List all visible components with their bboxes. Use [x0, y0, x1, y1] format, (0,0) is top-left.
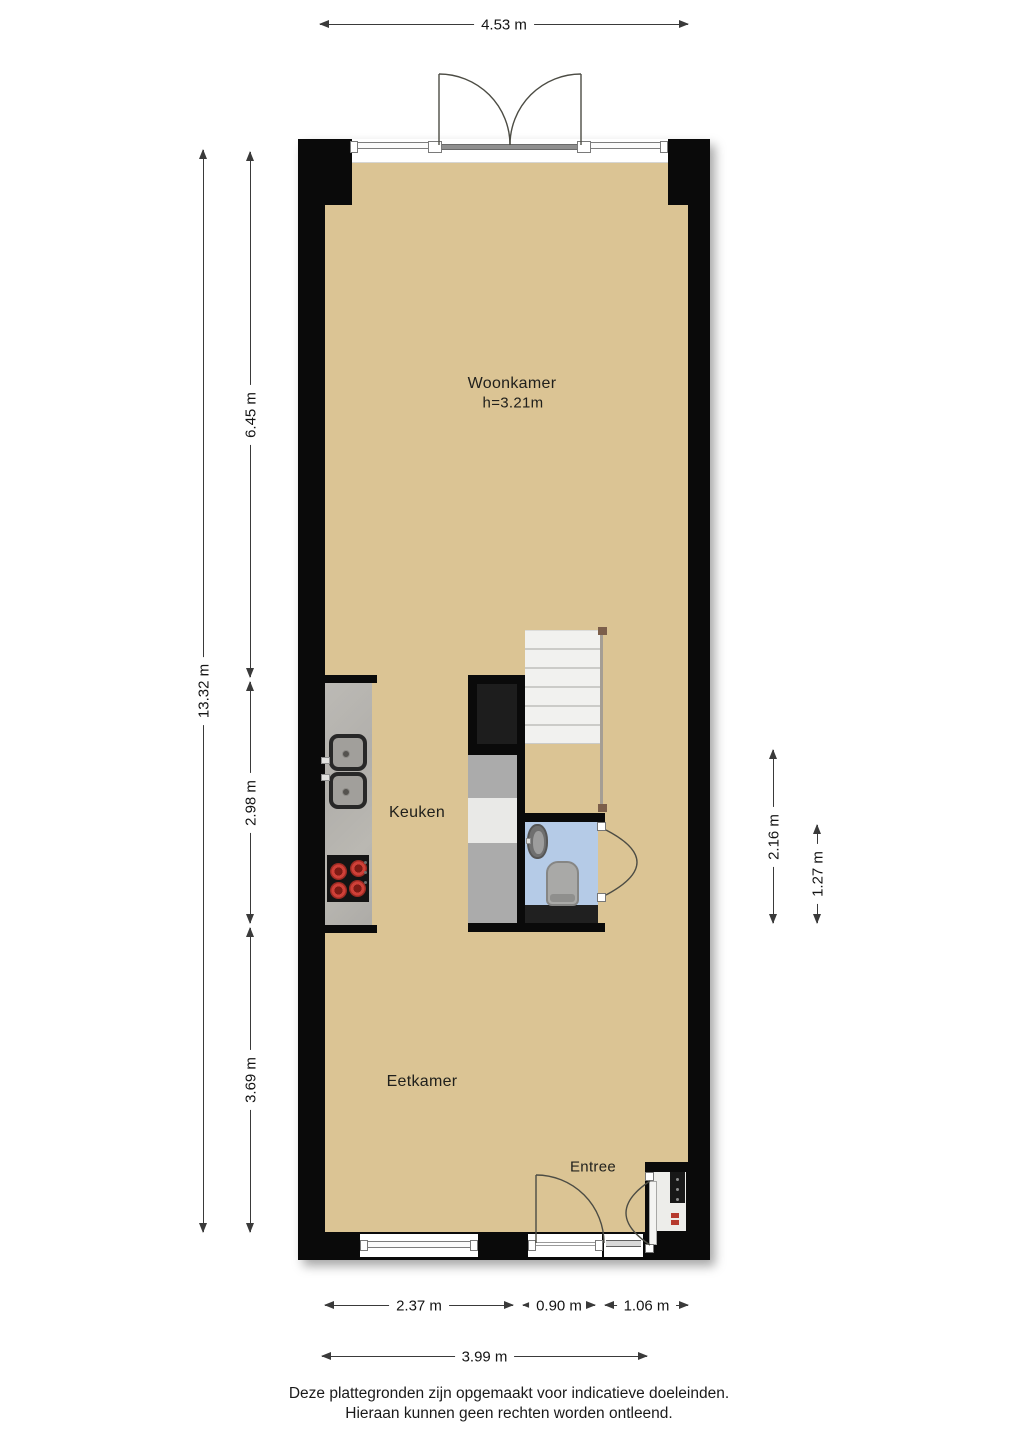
stair-divider-wall [517, 675, 525, 932]
bottom-window-glazing [364, 1241, 474, 1248]
basin-bowl [533, 831, 544, 854]
stove-knob [364, 871, 367, 874]
dim-toilet-depth: 1.27 m [817, 825, 818, 923]
door-frame-mark [595, 1240, 603, 1251]
meter-indicator [676, 1198, 679, 1201]
arrowhead [769, 914, 777, 924]
railing-post [598, 804, 607, 812]
arrowhead [813, 824, 821, 834]
dim-entry-door-width: 0.90 m [523, 1305, 595, 1306]
top-right-corner-pier [668, 163, 688, 205]
arrowhead [813, 914, 821, 924]
toilet-door-jamb [597, 822, 606, 831]
arrowhead [246, 681, 254, 691]
top-window-right [585, 142, 666, 149]
stove-knob [364, 861, 367, 864]
sink-drain [342, 750, 350, 758]
arrowhead [586, 1301, 596, 1309]
bottom-core-wall [468, 923, 605, 932]
room-label-entree: Entree [570, 1159, 616, 1176]
meter-red-mark [671, 1213, 679, 1218]
window-frame-mark [360, 1240, 368, 1251]
toilet-wall-top [517, 813, 605, 822]
sink-drain [342, 788, 350, 796]
top-window-left [354, 142, 435, 149]
arrowhead [246, 151, 254, 161]
arrowhead [246, 668, 254, 678]
dim-total-height: 13.32 m [203, 150, 204, 1232]
meter-door-hinge [645, 1244, 654, 1253]
footer-line-2: Hieraan kunnen geen rechten worden ontle… [0, 1404, 1018, 1424]
arrowhead [319, 20, 329, 28]
burner [330, 882, 347, 899]
arrowhead [504, 1301, 514, 1309]
footer-disclaimer: Deze plattegronden zijn opgemaakt voor i… [0, 1384, 1018, 1424]
dim-bottom-left-width: 2.37 m [325, 1305, 513, 1306]
french-door-left-arc [439, 74, 510, 145]
dim-top-width: 4.53 m [320, 24, 688, 25]
window-frame-mark [350, 141, 358, 153]
arrowhead [604, 1301, 614, 1309]
arrowhead [246, 914, 254, 924]
kitchen-wall-stub-top [325, 675, 377, 683]
french-door-right-arc [510, 74, 581, 145]
arrowhead [324, 1301, 334, 1309]
railing-post [598, 627, 607, 635]
island-dishwasher [468, 798, 517, 843]
arrowhead [769, 749, 777, 759]
stairs [525, 630, 601, 744]
kitchen-wall-stub-bottom [325, 925, 377, 933]
room-height-note: h=3.21m [483, 395, 544, 412]
meter-door-hinge [645, 1172, 654, 1181]
stove-knob [364, 881, 367, 884]
arrowhead [679, 1301, 689, 1309]
meter-cupboard-door-leaf [649, 1181, 657, 1245]
toilet [546, 861, 579, 906]
arrowhead [199, 1223, 207, 1233]
window-frame-mark [577, 141, 591, 153]
arrowhead [638, 1352, 648, 1360]
top-left-corner-pier [325, 163, 352, 205]
stair-railing [600, 630, 603, 812]
door-frame-mark [528, 1240, 536, 1251]
burner [330, 863, 347, 880]
entry-door-sill [532, 1242, 598, 1246]
arrowhead [246, 927, 254, 937]
dim-eetkamer-depth: 3.69 m [250, 928, 251, 1232]
dim-keuken-depth: 2.98 m [250, 682, 251, 923]
meter-indicator [676, 1188, 679, 1191]
sink-tap [321, 774, 330, 781]
kitchen-sink [329, 734, 367, 771]
toilet-door-jamb [597, 893, 606, 902]
window-frame-mark [660, 141, 668, 153]
room-label-eetkamer: Eetkamer [387, 1073, 458, 1091]
dim-bottom-total-width: 3.99 m [322, 1356, 647, 1357]
window-frame-mark [428, 141, 442, 153]
arrowhead [199, 149, 207, 159]
toilet-wall-bottom [525, 905, 598, 923]
sink-tap [321, 757, 330, 764]
island-appliance [477, 684, 517, 744]
kitchen-sink [329, 772, 367, 809]
meter-red-mark [671, 1220, 679, 1225]
stove [327, 855, 369, 902]
basin-tap [526, 838, 531, 844]
arrowhead [321, 1352, 331, 1360]
arrowhead [246, 1223, 254, 1233]
dim-stair-zone-depth: 2.16 m [773, 750, 774, 923]
floor-plan-page: Woonkamer h=3.21m Keuken Eetkamer Entree… [0, 0, 1018, 1440]
footer-line-1: Deze plattegronden zijn opgemaakt voor i… [0, 1384, 1018, 1404]
window-frame-mark [470, 1240, 478, 1251]
room-label-keuken: Keuken [389, 804, 445, 822]
top-door-sill [437, 144, 583, 150]
arrowhead [679, 20, 689, 28]
toilet-base [550, 894, 575, 902]
dim-woonkamer-depth: 6.45 m [250, 152, 251, 677]
entry-sidelight-glazing [606, 1240, 641, 1247]
meter-indicator [676, 1178, 679, 1181]
room-label-woonkamer: Woonkamer [468, 375, 557, 393]
dim-meter-cupboard-width: 1.06 m [605, 1305, 688, 1306]
